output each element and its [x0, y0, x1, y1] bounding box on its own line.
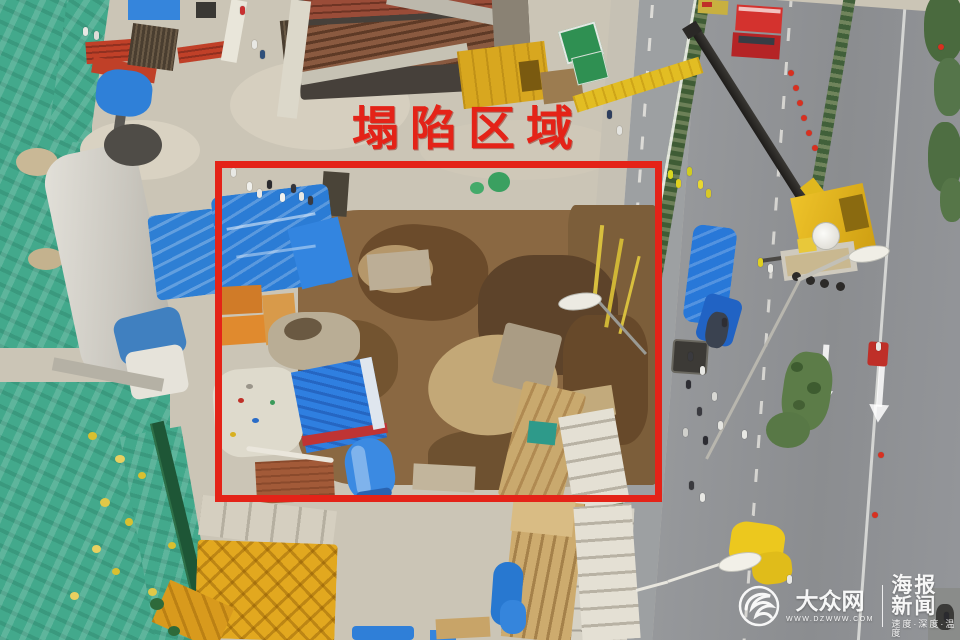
rebar-stack	[127, 23, 178, 71]
traffic-cone	[801, 115, 807, 121]
traffic-cone	[812, 145, 818, 151]
debris-speckle	[112, 568, 120, 575]
worker-hivis	[698, 180, 703, 189]
person	[688, 352, 693, 361]
tree-foliage	[793, 400, 805, 410]
person	[260, 50, 265, 59]
collapse-zone-label: 塌陷区域	[352, 90, 584, 159]
cement-silo-cap	[104, 124, 162, 166]
person	[758, 258, 763, 267]
traffic-cone	[788, 70, 794, 76]
traffic-cone	[872, 512, 878, 518]
bush	[168, 626, 180, 636]
tree-foliage	[791, 362, 803, 372]
blue-tarp-pile	[94, 67, 155, 119]
tree	[924, 0, 960, 62]
debris-speckle	[115, 455, 125, 463]
wood-pallet	[436, 617, 491, 640]
person	[718, 421, 723, 430]
worker-hivis	[668, 170, 673, 179]
traffic-cone	[938, 44, 944, 50]
watermark-site-url: WWW.DZWWW.COM	[786, 616, 874, 623]
debris-speckle	[70, 592, 79, 600]
person	[703, 436, 708, 445]
person	[768, 264, 773, 273]
road-arrow-head	[868, 404, 889, 423]
crane-wheel	[836, 282, 845, 291]
person	[689, 481, 694, 490]
dazhong-logo-icon	[736, 583, 782, 629]
person	[607, 110, 612, 119]
debris-speckle	[92, 545, 101, 553]
tree	[940, 178, 960, 222]
red-truck	[731, 4, 785, 61]
person	[240, 6, 245, 15]
person	[94, 31, 99, 40]
highway-sign-green	[571, 51, 609, 86]
person	[742, 430, 747, 439]
small-vehicle-red	[702, 2, 712, 7]
traffic-cone	[797, 100, 803, 106]
tree-foliage	[807, 382, 821, 394]
person	[683, 428, 688, 437]
traffic-cone	[878, 452, 884, 458]
debris-speckle	[138, 472, 146, 479]
aerial-photo-construction-collapse: 塌陷区域 大众网 WWW.DZWWW.COM 海报新闻 速度·深度·温度	[0, 0, 960, 640]
traffic-cone	[793, 85, 799, 91]
person	[697, 407, 702, 416]
debris-speckle	[100, 498, 110, 507]
person	[700, 493, 705, 502]
traffic-cone	[806, 130, 812, 136]
worker-hivis	[706, 189, 711, 198]
watermark-brand-name: 海报新闻	[891, 575, 960, 617]
crane-wheel	[820, 279, 829, 288]
debris-speckle	[148, 588, 157, 596]
blue-tarp	[128, 0, 180, 20]
person	[83, 27, 88, 36]
worker-hivis	[687, 167, 692, 176]
debris-speckle	[125, 518, 133, 526]
bush	[150, 598, 164, 610]
blue-tarp-fragment	[352, 626, 414, 640]
collapse-zone-box	[215, 161, 662, 502]
watermark-site-name: 大众网	[795, 590, 864, 613]
debris-speckle	[88, 432, 97, 440]
worker-hivis	[676, 179, 681, 188]
watermark-divider	[882, 585, 883, 627]
tree	[934, 58, 960, 116]
white-sack-column	[573, 503, 640, 640]
fallen-tree-part	[766, 412, 810, 448]
person	[700, 366, 705, 375]
person	[712, 392, 717, 401]
watermark: 大众网 WWW.DZWWW.COM 海报新闻 速度·深度·温度	[736, 578, 960, 634]
debris-speckle	[168, 542, 176, 549]
umbrella	[812, 222, 840, 250]
person	[252, 40, 257, 49]
person	[617, 126, 622, 135]
watermark-slogan: 速度·深度·温度	[891, 620, 960, 638]
blue-drum	[500, 600, 526, 634]
dark-equipment	[196, 2, 216, 18]
person	[686, 380, 691, 389]
container-door	[519, 60, 543, 92]
person	[722, 318, 727, 327]
person	[876, 342, 881, 351]
